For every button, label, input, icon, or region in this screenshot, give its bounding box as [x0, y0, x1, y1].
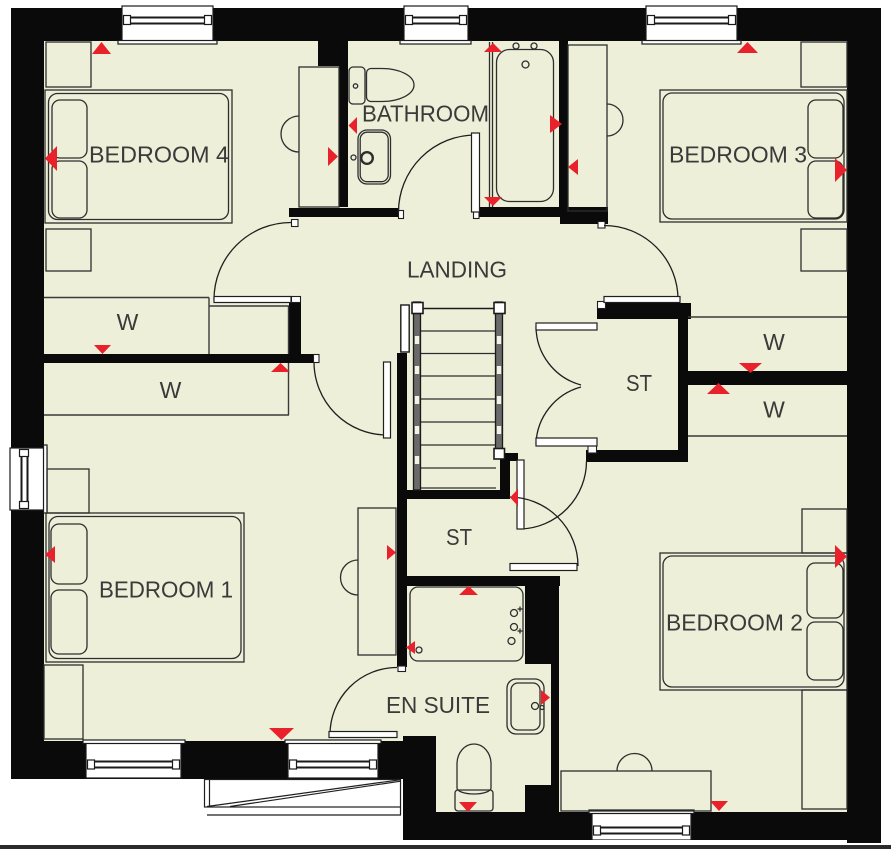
svg-text:BEDROOM 2: BEDROOM 2 — [666, 610, 803, 636]
svg-text:BEDROOM 3: BEDROOM 3 — [669, 142, 807, 168]
svg-text:EN SUITE: EN SUITE — [386, 692, 490, 718]
svg-text:W: W — [160, 377, 182, 403]
svg-text:W: W — [763, 397, 785, 423]
svg-text:W: W — [117, 309, 139, 335]
svg-text:BEDROOM 4: BEDROOM 4 — [89, 142, 229, 168]
svg-text:LANDING: LANDING — [407, 257, 507, 283]
svg-text:ST: ST — [626, 370, 652, 396]
svg-text:BEDROOM 1: BEDROOM 1 — [99, 577, 233, 603]
svg-text:ST: ST — [446, 524, 472, 550]
svg-text:BATHROOM: BATHROOM — [362, 101, 489, 127]
svg-text:W: W — [763, 329, 785, 355]
